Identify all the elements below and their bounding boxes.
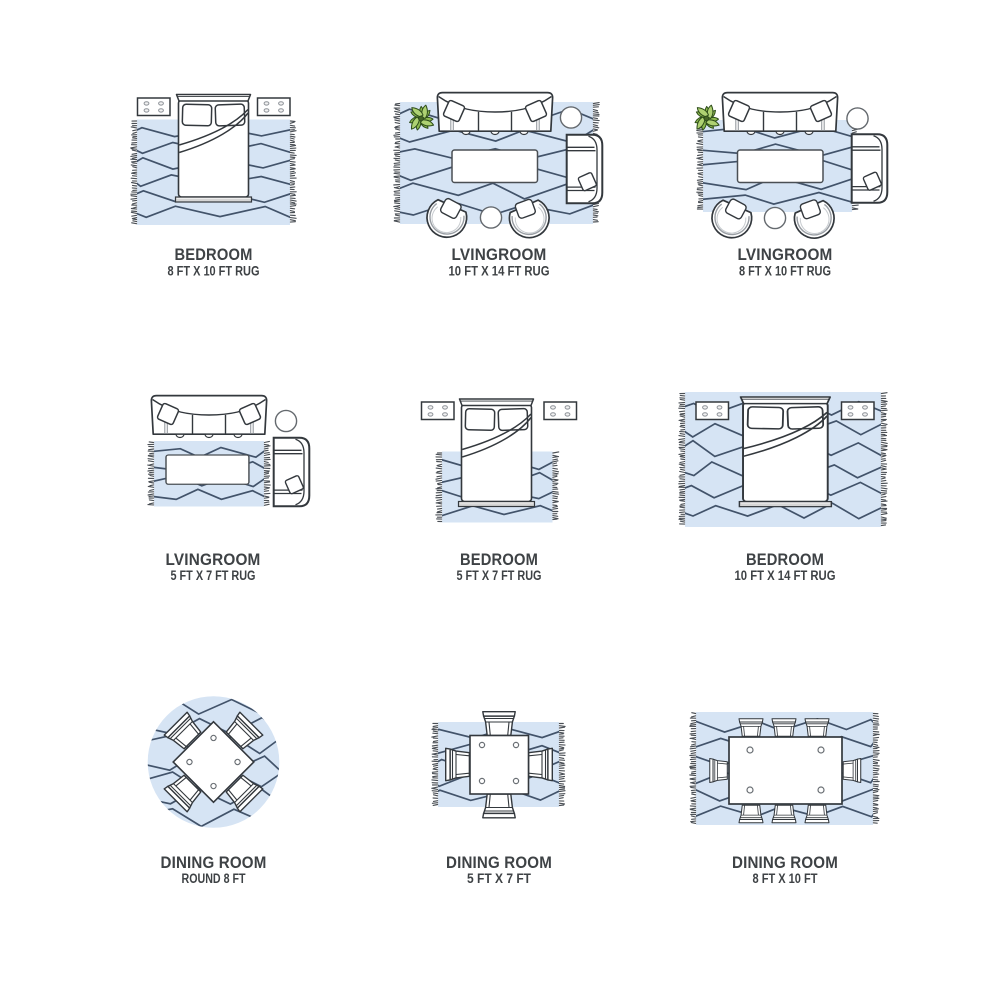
svg-text:8 FT X 10 FT RUG: 8 FT X 10 FT RUG bbox=[168, 264, 260, 280]
svg-text:5 FT X 7 FT: 5 FT X 7 FT bbox=[467, 871, 531, 887]
svg-text:DINING ROOM: DINING ROOM bbox=[161, 853, 267, 872]
svg-text:10 FT X 14 FT RUG: 10 FT X 14 FT RUG bbox=[449, 264, 550, 280]
svg-text:5 FT X 7 FT RUG: 5 FT X 7 FT RUG bbox=[457, 568, 542, 584]
svg-text:BEDROOM: BEDROOM bbox=[746, 550, 824, 569]
svg-text:5 FT X 7 FT RUG: 5 FT X 7 FT RUG bbox=[171, 568, 256, 584]
svg-text:8 FT X 10 FT RUG: 8 FT X 10 FT RUG bbox=[739, 264, 831, 280]
svg-text:BEDROOM: BEDROOM bbox=[175, 245, 253, 264]
svg-text:BEDROOM: BEDROOM bbox=[460, 550, 538, 569]
svg-text:DINING ROOM: DINING ROOM bbox=[732, 853, 838, 872]
svg-text:DINING ROOM: DINING ROOM bbox=[446, 853, 552, 872]
svg-text:10 FT X 14 FT RUG: 10 FT X 14 FT RUG bbox=[735, 568, 836, 584]
svg-text:ROUND 8 FT: ROUND 8 FT bbox=[182, 871, 246, 887]
svg-text:8 FT X 10 FT: 8 FT X 10 FT bbox=[753, 871, 818, 887]
svg-text:LVINGROOM: LVINGROOM bbox=[452, 245, 547, 264]
svg-text:LVINGROOM: LVINGROOM bbox=[738, 245, 833, 264]
svg-text:LVINGROOM: LVINGROOM bbox=[166, 550, 261, 569]
